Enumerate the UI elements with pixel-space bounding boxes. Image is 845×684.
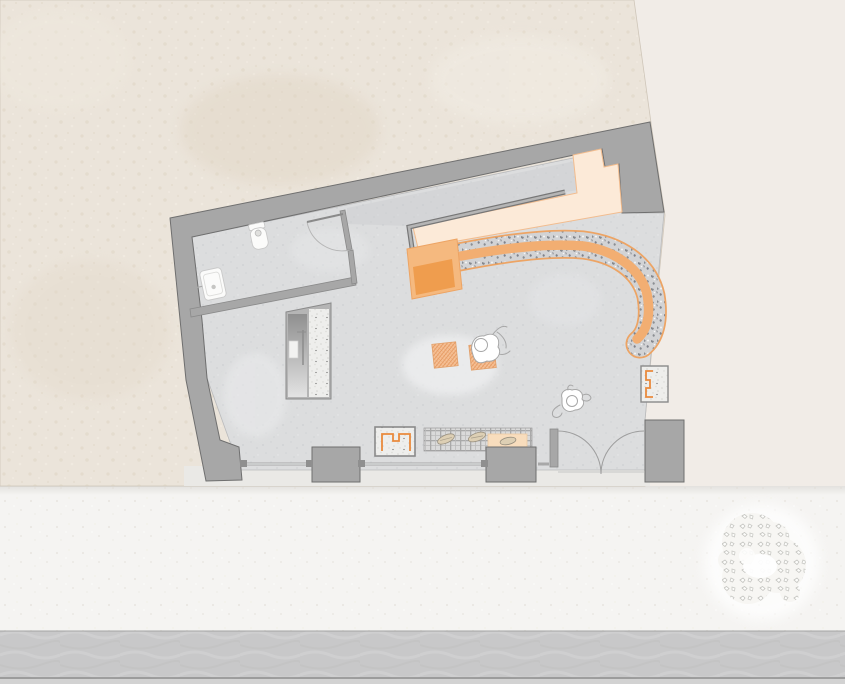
stair-shaft (286, 303, 331, 399)
floor-plan-canvas (0, 0, 845, 684)
pier-center-c (486, 447, 536, 482)
mullion-3 (358, 460, 365, 467)
pier-right-d (645, 420, 684, 482)
pier-left-b (312, 447, 360, 482)
display-plinth (375, 427, 415, 456)
bar-service-block (407, 239, 462, 299)
bench-right (641, 366, 668, 402)
side-table-1 (432, 342, 458, 368)
mullion-2 (306, 460, 313, 467)
building-shadow (0, 486, 845, 495)
mullion-1 (240, 460, 247, 467)
street-tree (704, 504, 820, 620)
floor-plan-drawing (0, 0, 845, 684)
mullion-4 (481, 460, 488, 467)
street (0, 631, 845, 684)
door-jamb-left (550, 429, 558, 467)
